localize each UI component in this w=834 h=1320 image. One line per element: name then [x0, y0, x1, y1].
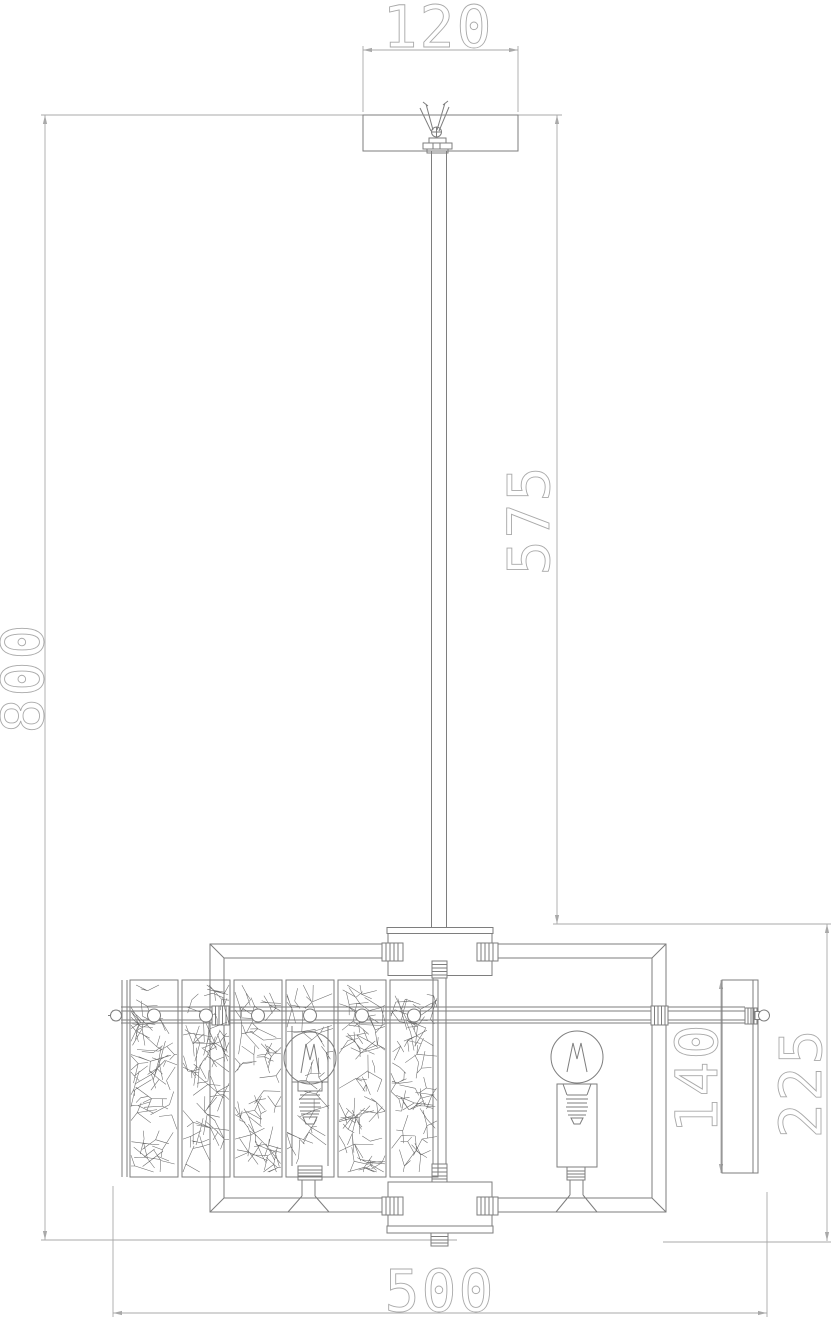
side-plate-left [122, 980, 127, 1177]
finial-right [759, 1010, 770, 1021]
dimension-label-500: 500 [385, 1257, 496, 1320]
dimension-canopy-width: 120 [363, 0, 518, 112]
rod-bead [200, 1009, 213, 1022]
dimension-overall-height: 800 [0, 115, 457, 1240]
dimension-label-140: 140 [663, 1023, 731, 1134]
lamp-left-stem [288, 1180, 329, 1212]
top-hub [382, 928, 498, 979]
dimension-label-575: 575 [495, 465, 563, 576]
ceiling-canopy [363, 101, 518, 153]
crystal-panels [130, 980, 438, 1177]
suspension-rod [432, 151, 447, 928]
lamp-left [284, 1026, 336, 1212]
crackle-texture [131, 985, 437, 1172]
lamp-right-stem [556, 1180, 597, 1212]
rod-bead [252, 1009, 265, 1022]
dimension-label-225: 225 [767, 1028, 834, 1139]
central-stem [433, 978, 446, 1164]
finial-left [111, 1010, 122, 1021]
dimension-rod-drop: 575 [495, 115, 831, 924]
rod-bead [148, 1009, 161, 1022]
filament-right [567, 1043, 587, 1072]
rod-bead [408, 1009, 421, 1022]
dimension-label-120: 120 [383, 0, 494, 61]
rod-bead [356, 1009, 369, 1022]
chandelier-technical-drawing: 120 800 575 225 140 500 [0, 0, 834, 1320]
rod-bead [304, 1009, 317, 1022]
bottom-hub [382, 1164, 498, 1246]
dimension-label-800: 800 [0, 623, 57, 734]
screw-base-right [566, 1095, 588, 1124]
mounting-hook-detail [420, 101, 452, 153]
drawing-canvas: 120 800 575 225 140 500 [0, 0, 834, 1320]
dimension-annotations: 120 800 575 225 140 500 [0, 0, 834, 1320]
dimension-side-panel-height: 140 [663, 980, 731, 1173]
lamp-right [551, 1031, 603, 1212]
socket-housing-right [557, 1084, 597, 1167]
